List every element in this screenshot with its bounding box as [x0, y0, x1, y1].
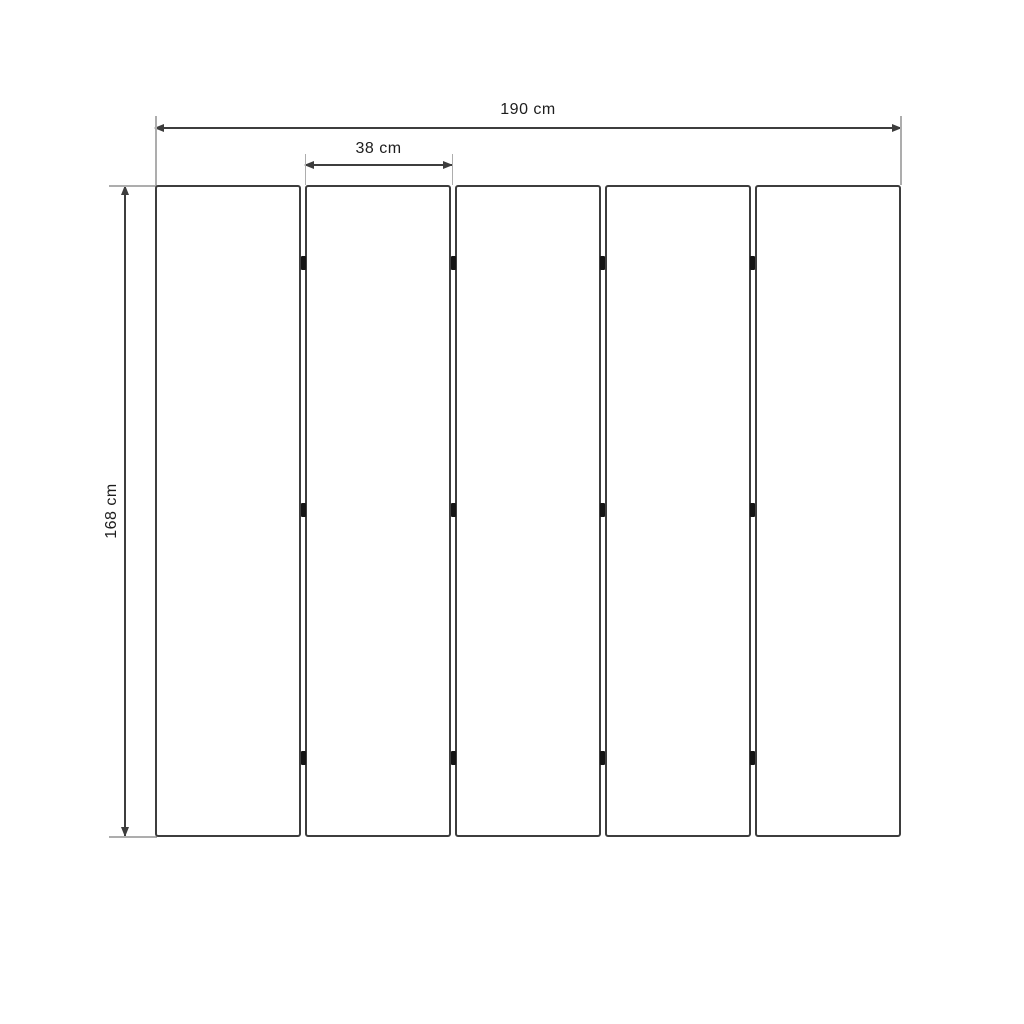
extension-line [305, 154, 307, 185]
panel [755, 185, 901, 837]
panel [155, 185, 301, 837]
dimension-line-height [124, 186, 126, 836]
dimension-line-total-width [155, 127, 901, 129]
hinge-mark [750, 256, 755, 270]
hinge-mark [451, 256, 456, 270]
hinge-mark [451, 751, 456, 765]
hinge-mark [301, 503, 306, 517]
extension-line [900, 116, 902, 185]
dimension-label-height: 168 cm [102, 451, 122, 571]
hinge-mark [301, 751, 306, 765]
extension-line [452, 154, 454, 185]
panels-row [155, 185, 901, 837]
dimension-line-panel-width [305, 164, 452, 166]
panel-diagram: 190 cm 38 cm 168 cm [0, 0, 1024, 1024]
hinge-mark [600, 751, 605, 765]
extension-line [155, 116, 157, 185]
extension-line [109, 836, 157, 838]
panel [605, 185, 751, 837]
dimension-label-panel-width: 38 cm [305, 139, 452, 159]
dimension-label-total-width: 190 cm [155, 100, 901, 120]
hinge-mark [600, 503, 605, 517]
hinge-mark [750, 503, 755, 517]
extension-line [109, 185, 157, 187]
hinge-mark [451, 503, 456, 517]
panel [455, 185, 601, 837]
hinge-mark [301, 256, 306, 270]
hinge-mark [750, 751, 755, 765]
arrow-up-icon [121, 185, 129, 195]
hinge-mark [600, 256, 605, 270]
panel [305, 185, 451, 837]
